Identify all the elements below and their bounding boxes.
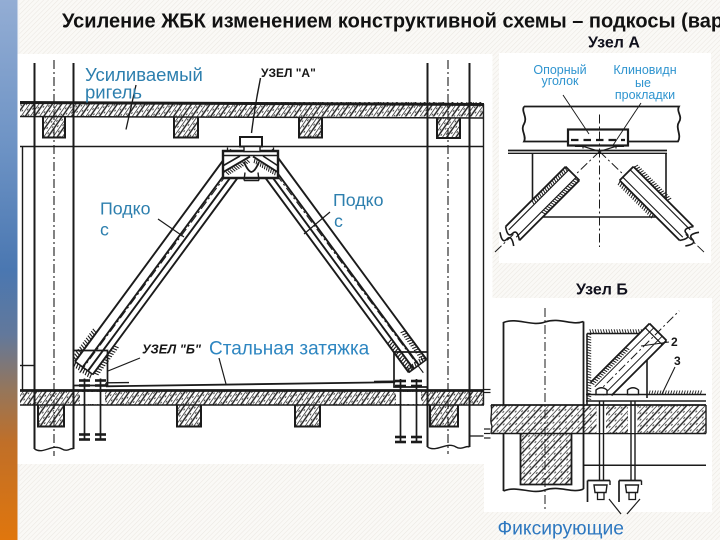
svg-text:Стальная затяжка: Стальная затяжка: [209, 339, 370, 360]
svg-text:Фиксирующие: Фиксирующие: [498, 519, 624, 540]
svg-text:прокладки: прокладки: [615, 88, 675, 102]
svg-text:Подко: Подко: [333, 190, 384, 210]
svg-text:Клиновидн: Клиновидн: [613, 63, 676, 77]
svg-text:Узел А: Узел А: [588, 35, 640, 52]
svg-text:Подко: Подко: [100, 199, 151, 219]
svg-text:2: 2: [671, 335, 678, 349]
svg-text:ригель: ригель: [85, 82, 142, 103]
svg-text:3: 3: [674, 354, 681, 368]
svg-text:Усиление ЖБК изменением констр: Усиление ЖБК изменением конструктивной с…: [62, 10, 720, 32]
svg-text:УЗЕЛ "Б": УЗЕЛ "Б": [142, 342, 202, 357]
svg-text:Узел Б: Узел Б: [576, 282, 628, 299]
svg-text:УЗЕЛ "А": УЗЕЛ "А": [261, 66, 316, 80]
svg-text:уголок: уголок: [541, 74, 579, 88]
svg-text:с: с: [100, 220, 109, 240]
svg-text:с: с: [334, 211, 343, 231]
